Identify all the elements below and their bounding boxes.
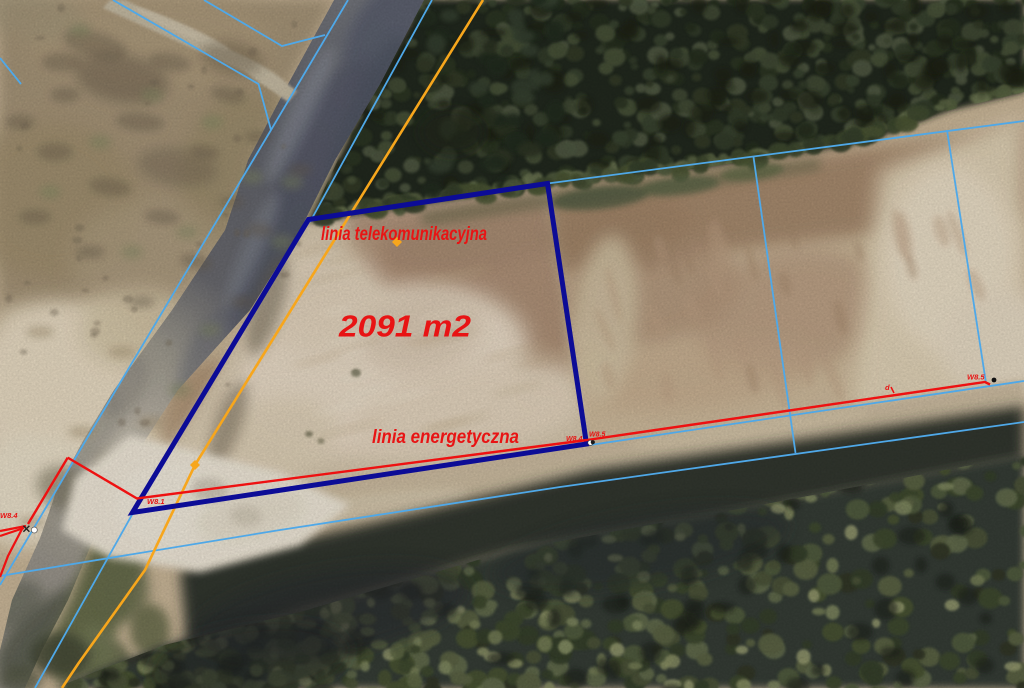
svg-text:2091 m2: 2091 m2	[338, 309, 471, 344]
svg-text:d: d	[885, 383, 890, 392]
svg-text:linia energetyczna: linia energetyczna	[372, 426, 519, 448]
svg-text:W8.1: W8.1	[147, 497, 165, 506]
svg-text:W8.4: W8.4	[566, 436, 582, 443]
svg-text:linia telekomunikacyjna: linia telekomunikacyjna	[321, 224, 487, 245]
svg-text:W8.5: W8.5	[589, 432, 605, 439]
svg-text:W8.5: W8.5	[967, 373, 985, 382]
svg-text:W8.4: W8.4	[0, 511, 18, 520]
